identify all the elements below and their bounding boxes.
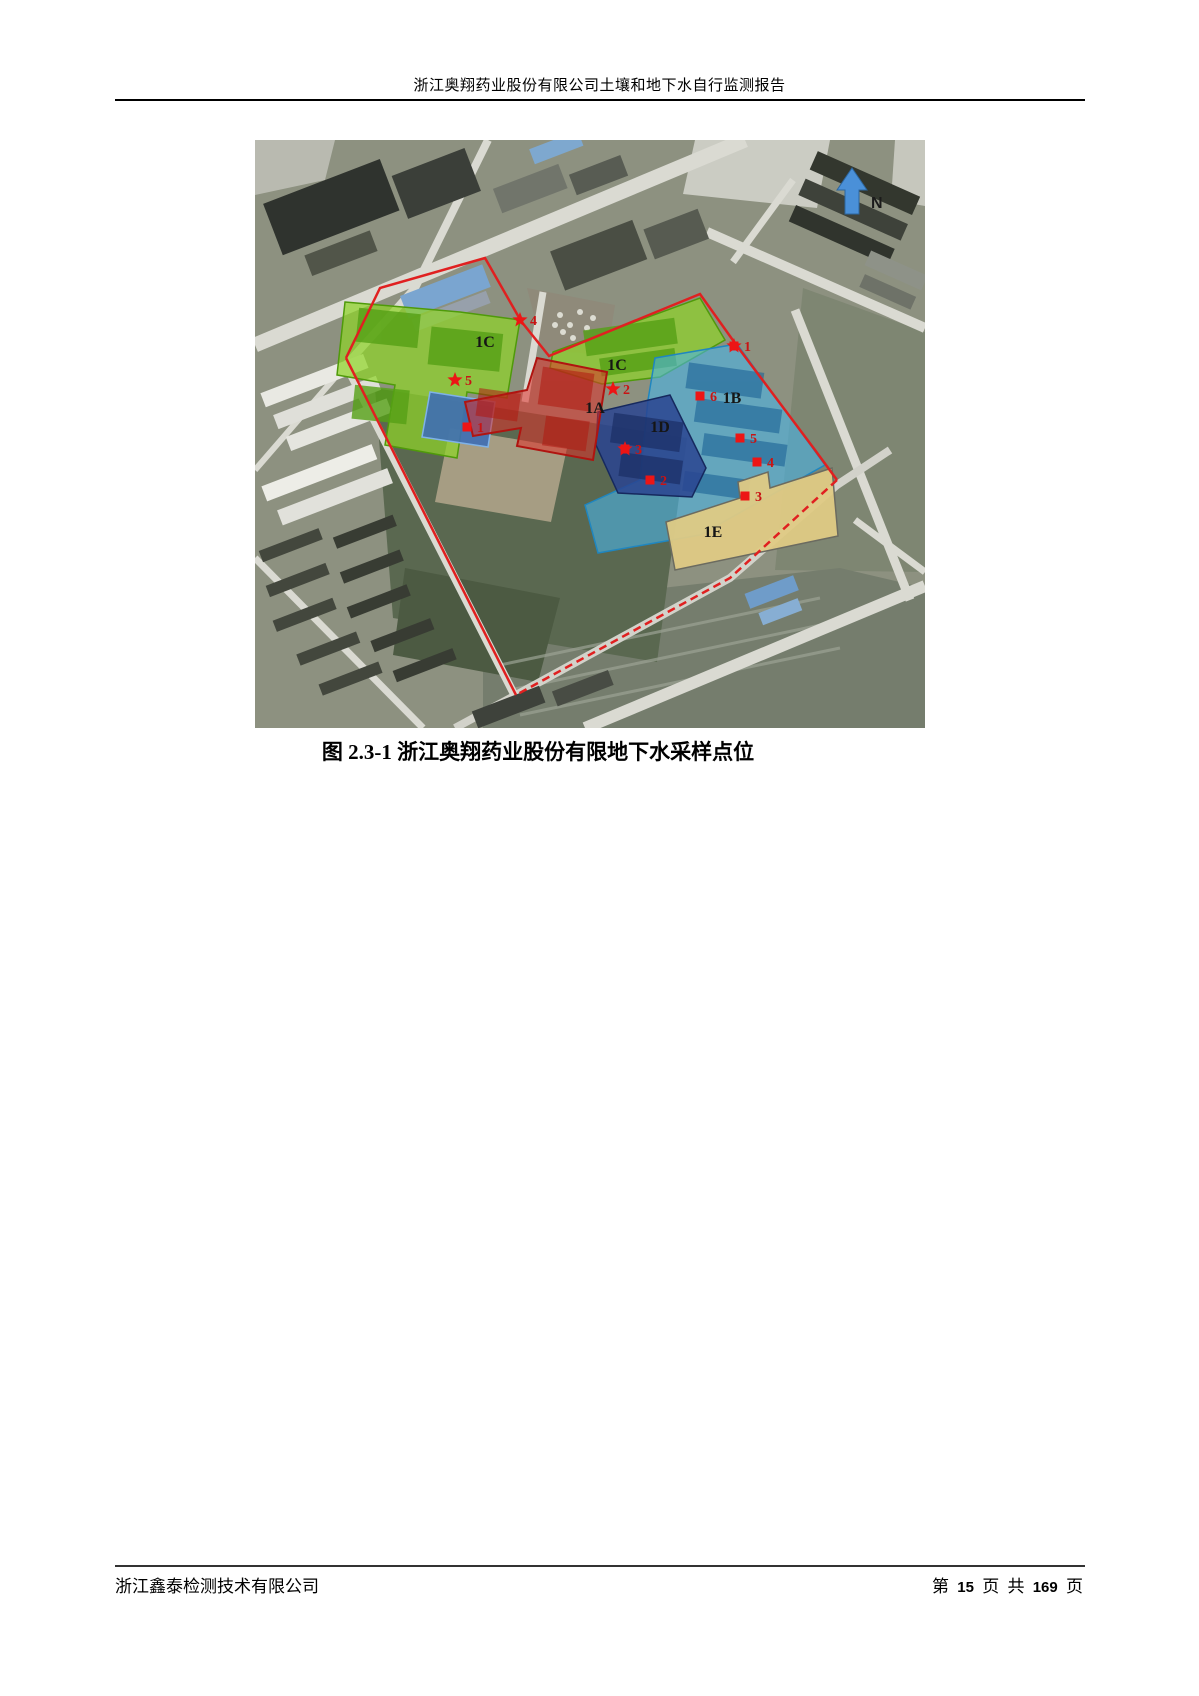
page-number-unit2: 页 (1066, 1577, 1083, 1596)
header-rule (115, 99, 1085, 101)
svg-text:2: 2 (623, 383, 630, 398)
svg-text:4: 4 (530, 314, 537, 329)
svg-text:2: 2 (660, 474, 667, 489)
footer-company: 浙江鑫泰检测技术有限公司 (115, 1572, 319, 1597)
zone-label-1d-3: 1D (650, 419, 670, 436)
page-number-conj: 共 (1007, 1577, 1024, 1596)
north-label: N (871, 195, 883, 212)
zone-label-1e-5: 1E (704, 524, 723, 541)
svg-text:1: 1 (477, 421, 484, 436)
svg-text:4: 4 (767, 456, 774, 471)
svg-text:5: 5 (750, 432, 757, 447)
page-number-prefix: 第 (932, 1577, 949, 1596)
svg-text:6: 6 (710, 390, 717, 405)
page-header-title: 浙江奥翔药业股份有限公司土壤和地下水自行监测报告 (0, 74, 1199, 95)
page-footer: 浙江鑫泰检测技术有限公司 第 15 页 共 169 页 (115, 1572, 1085, 1597)
zone-label-1c-0: 1C (475, 334, 495, 351)
svg-text:3: 3 (755, 490, 762, 505)
zone-label-1c-1: 1C (607, 357, 627, 374)
report-page: 浙江奥翔药业股份有限公司土壤和地下水自行监测报告 (0, 0, 1199, 1696)
site-map-svg: N 1C1C1A1D1B1E 12345123456 (255, 140, 925, 728)
figure-caption: 图 2.3-1 浙江奥翔药业股份有限地下水采样点位 (255, 736, 821, 766)
zone-label-1b-4: 1B (723, 390, 742, 407)
page-number-current: 15 (957, 1579, 974, 1596)
footer-rule (115, 1565, 1085, 1567)
svg-text:5: 5 (465, 374, 472, 389)
zone-label-1a-2: 1A (585, 400, 605, 417)
svg-text:1: 1 (744, 340, 751, 355)
svg-text:3: 3 (635, 443, 642, 458)
footer-page-number: 第 15 页 共 169 页 (930, 1572, 1085, 1597)
page-number-unit1: 页 (982, 1577, 999, 1596)
figure-map: N 1C1C1A1D1B1E 12345123456 (255, 140, 925, 728)
page-number-total: 169 (1033, 1579, 1058, 1596)
